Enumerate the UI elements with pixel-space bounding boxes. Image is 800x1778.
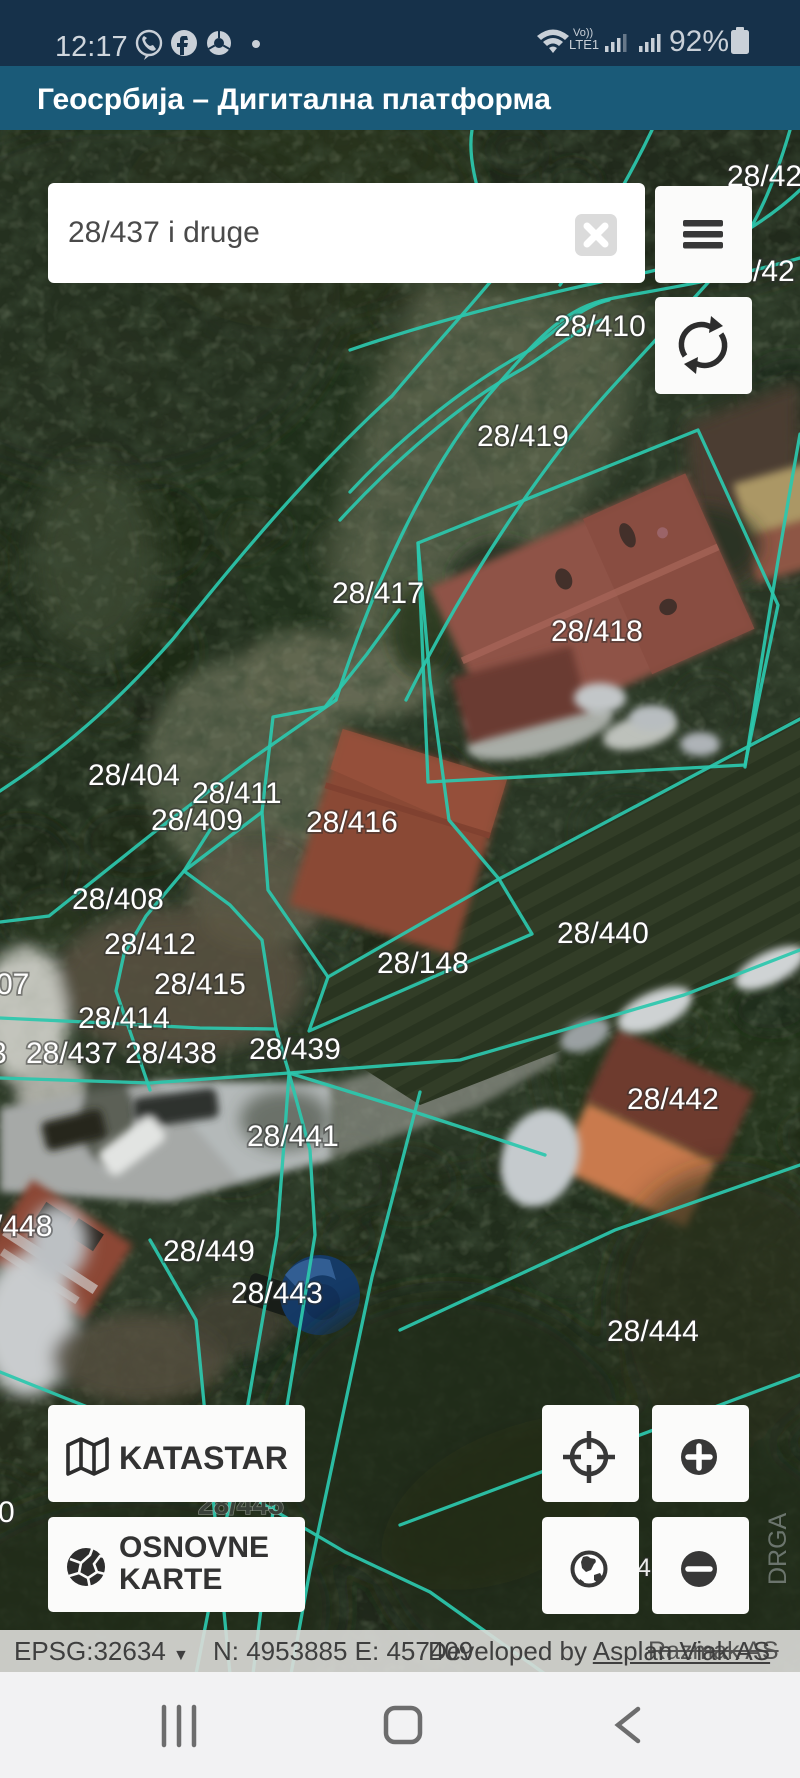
svg-text:07: 07 <box>0 968 29 1001</box>
svg-text:28/418: 28/418 <box>551 615 643 648</box>
svg-text:92%: 92% <box>669 25 729 58</box>
svg-text:28/419: 28/419 <box>477 420 569 453</box>
svg-text:28/439: 28/439 <box>249 1033 341 1066</box>
svg-text:28/409: 28/409 <box>151 804 243 837</box>
svg-text:28/414: 28/414 <box>78 1002 170 1035</box>
svg-text:/42: /42 <box>753 255 795 288</box>
svg-text:28/148: 28/148 <box>377 947 469 980</box>
svg-text:DRGA: DRGA <box>764 1512 792 1585</box>
svg-text:LTE1: LTE1 <box>569 37 599 52</box>
svg-text:28/415: 28/415 <box>154 968 246 1001</box>
svg-text:28/442: 28/442 <box>627 1083 719 1116</box>
svg-text:28/410: 28/410 <box>554 310 646 343</box>
svg-text:28/438: 28/438 <box>125 1037 217 1070</box>
svg-text:28/408: 28/408 <box>72 883 164 916</box>
svg-text:28/449: 28/449 <box>163 1235 255 1268</box>
svg-text:0: 0 <box>0 1496 15 1529</box>
svg-text:OSNOVNE: OSNOVNE <box>119 1531 269 1564</box>
svg-text:28/443: 28/443 <box>231 1277 323 1310</box>
svg-text:4: 4 <box>637 1554 651 1582</box>
svg-text:28/440: 28/440 <box>557 917 649 950</box>
svg-text:28/441: 28/441 <box>247 1120 339 1153</box>
svg-text:28/417: 28/417 <box>332 577 424 610</box>
svg-text:28/412: 28/412 <box>104 928 196 961</box>
svg-text:28/444: 28/444 <box>607 1315 699 1348</box>
svg-text:28/416: 28/416 <box>306 806 398 839</box>
svg-text:/448: /448 <box>0 1210 52 1243</box>
svg-text:28/437: 28/437 <box>26 1037 118 1070</box>
svg-text:28/404: 28/404 <box>88 759 180 792</box>
svg-text:KARTE: KARTE <box>119 1563 222 1596</box>
svg-text:3: 3 <box>0 1037 7 1070</box>
svg-text:KATASTAR: KATASTAR <box>119 1440 288 1476</box>
